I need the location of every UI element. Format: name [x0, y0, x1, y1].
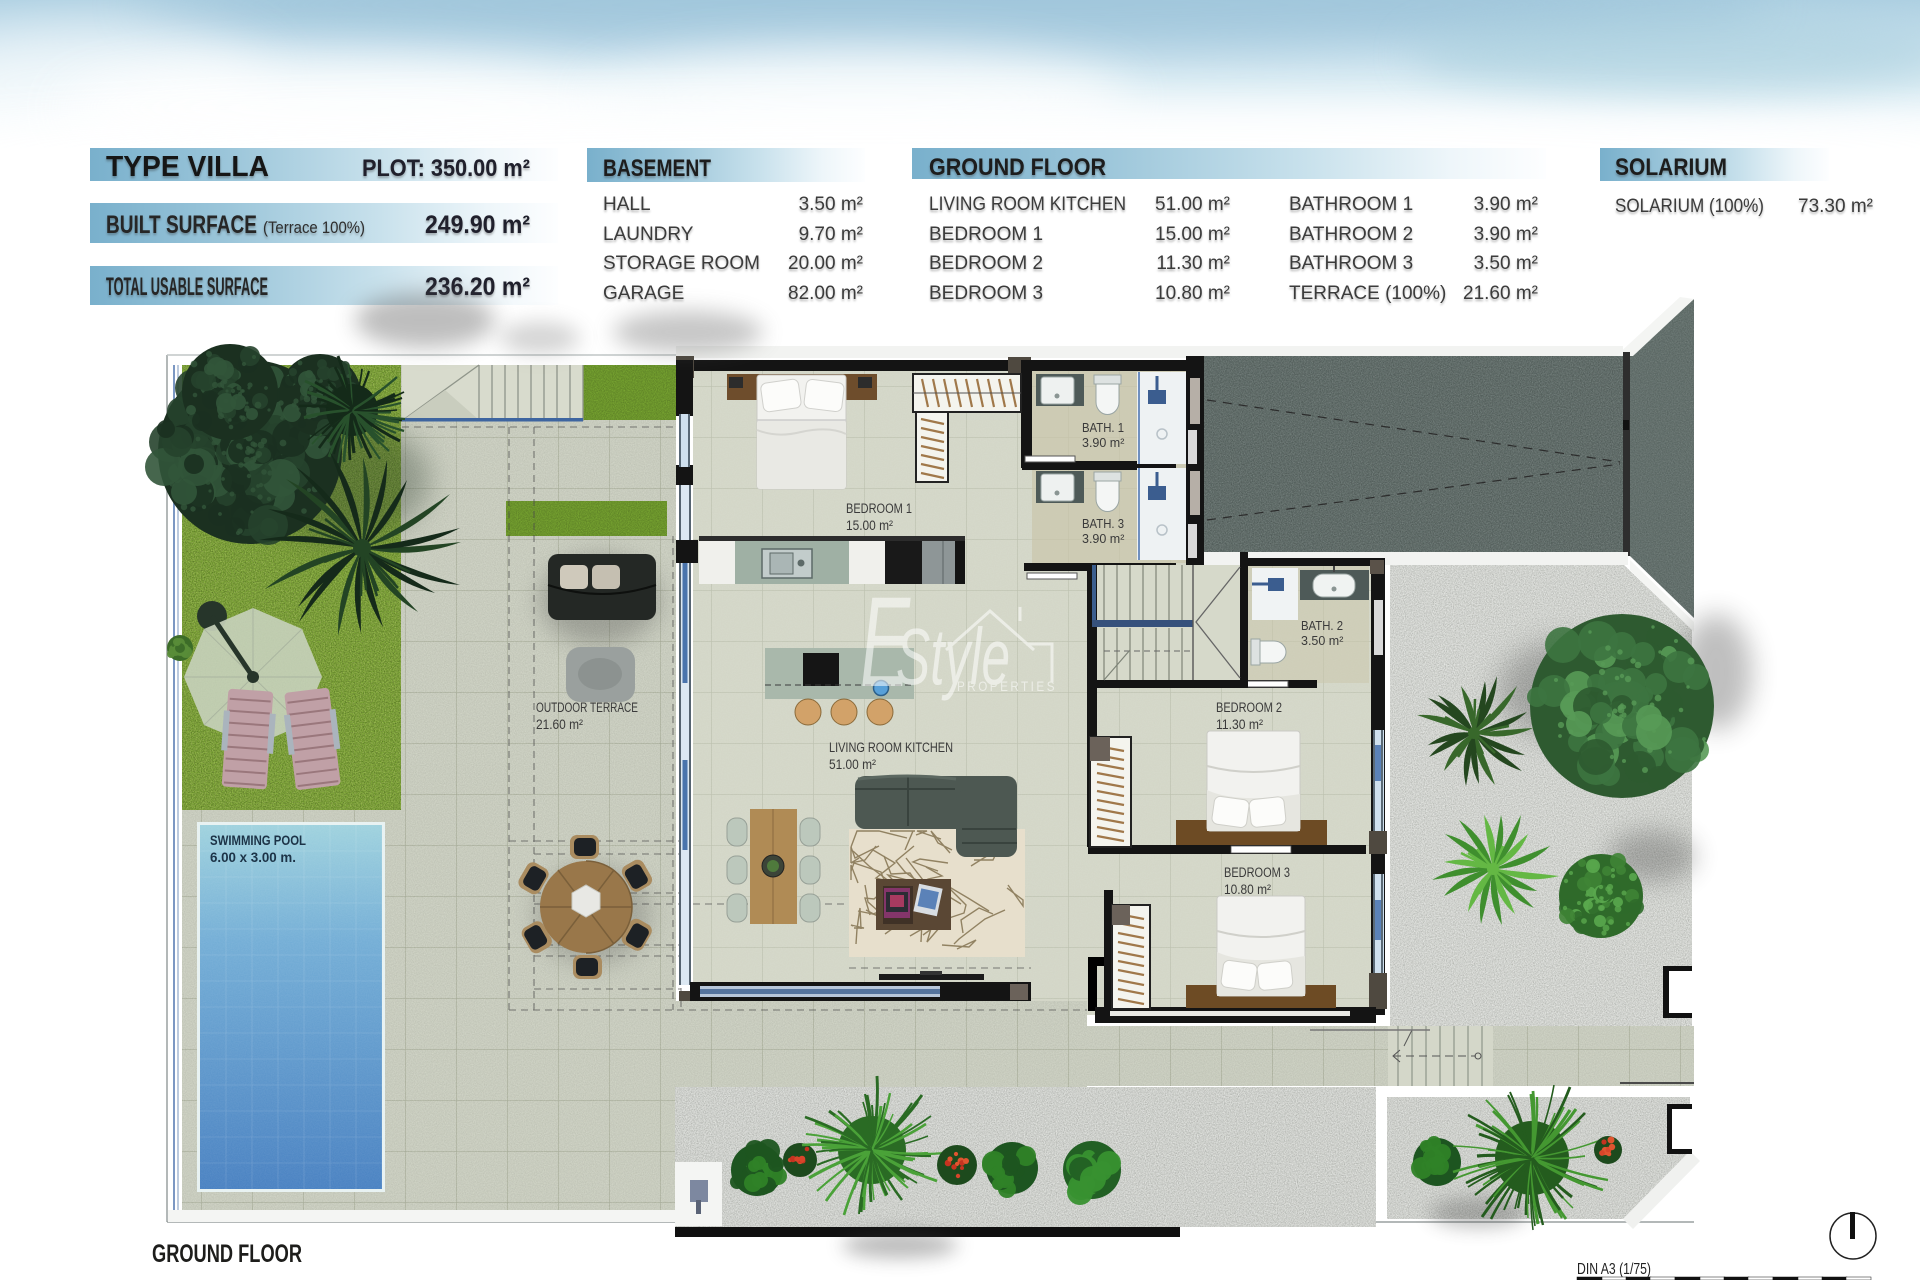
svg-text:51.00 m²: 51.00 m²: [1155, 194, 1230, 215]
svg-text:BEDROOM 3: BEDROOM 3: [1224, 865, 1290, 880]
svg-text:DIN A3 (1/75): DIN A3 (1/75): [1577, 1261, 1651, 1278]
svg-text:10.80 m²: 10.80 m²: [1224, 882, 1271, 897]
svg-text:STORAGE ROOM: STORAGE ROOM: [603, 253, 760, 274]
svg-text:SOLARIUM: SOLARIUM: [1615, 154, 1727, 181]
svg-text:BATH. 1: BATH. 1: [1082, 421, 1124, 435]
svg-text:9.70 m²: 9.70 m²: [799, 224, 863, 245]
svg-text:GROUND FLOOR: GROUND FLOOR: [152, 1240, 302, 1268]
svg-text:82.00 m²: 82.00 m²: [788, 283, 863, 304]
svg-text:GROUND FLOOR: GROUND FLOOR: [929, 154, 1106, 181]
svg-text:HALL: HALL: [603, 194, 651, 215]
svg-text:OUTDOOR TERRACE: OUTDOOR TERRACE: [536, 700, 638, 715]
svg-text:21.60 m²: 21.60 m²: [1463, 283, 1538, 304]
svg-text:BEDROOM 3: BEDROOM 3: [929, 283, 1043, 304]
svg-text:249.90 m²: 249.90 m²: [425, 211, 530, 239]
svg-text:BEDROOM 1: BEDROOM 1: [846, 501, 912, 516]
svg-text:LIVING ROOM KITCHEN: LIVING ROOM KITCHEN: [929, 194, 1126, 215]
svg-text:73.30 m²: 73.30 m²: [1798, 196, 1873, 217]
svg-text:BUILT SURFACE: BUILT SURFACE: [106, 211, 257, 239]
svg-text:SOLARIUM (100%): SOLARIUM (100%): [1615, 196, 1764, 217]
svg-text:TYPE VILLA: TYPE VILLA: [106, 151, 269, 183]
svg-text:BATHROOM 1: BATHROOM 1: [1289, 194, 1413, 215]
svg-text:15.00 m²: 15.00 m²: [1155, 224, 1230, 245]
svg-text:3.90 m²: 3.90 m²: [1082, 532, 1124, 546]
svg-text:TOTAL USABLE SURFACE: TOTAL USABLE SURFACE: [106, 273, 268, 301]
svg-text:3.50 m²: 3.50 m²: [1474, 253, 1538, 274]
svg-text:GARAGE: GARAGE: [603, 283, 684, 304]
svg-text:(Terrace 100%): (Terrace 100%): [263, 218, 365, 237]
svg-text:BEDROOM 2: BEDROOM 2: [929, 253, 1043, 274]
svg-text:LIVING ROOM KITCHEN: LIVING ROOM KITCHEN: [829, 740, 953, 755]
svg-text:3.90 m²: 3.90 m²: [1474, 194, 1538, 215]
svg-text:BASEMENT: BASEMENT: [603, 155, 711, 182]
svg-text:3.90 m²: 3.90 m²: [1474, 224, 1538, 245]
svg-text:PLOT: 350.00 m²: PLOT: 350.00 m²: [362, 155, 530, 182]
svg-text:21.60 m²: 21.60 m²: [536, 717, 583, 732]
svg-text:BATH. 2: BATH. 2: [1301, 619, 1343, 633]
svg-text:3.50 m²: 3.50 m²: [799, 194, 863, 215]
svg-text:20.00 m²: 20.00 m²: [788, 253, 863, 274]
svg-text:6.00 x 3.00 m.: 6.00 x 3.00 m.: [210, 849, 296, 865]
svg-text:BATH. 3: BATH. 3: [1082, 517, 1124, 531]
svg-text:BEDROOM 2: BEDROOM 2: [1216, 700, 1282, 715]
svg-text:BATHROOM 3: BATHROOM 3: [1289, 253, 1413, 274]
svg-text:TERRACE (100%): TERRACE (100%): [1289, 283, 1446, 304]
svg-text:PROPERTIES: PROPERTIES: [957, 678, 1057, 694]
svg-text:LAUNDRY: LAUNDRY: [603, 224, 694, 245]
svg-text:BEDROOM 1: BEDROOM 1: [929, 224, 1043, 245]
svg-text:3.90 m²: 3.90 m²: [1082, 436, 1124, 450]
svg-text:11.30 m²: 11.30 m²: [1216, 717, 1263, 732]
svg-text:BATHROOM 2: BATHROOM 2: [1289, 224, 1413, 245]
svg-text:15.00 m²: 15.00 m²: [846, 518, 893, 533]
svg-text:11.30 m²: 11.30 m²: [1156, 253, 1230, 274]
svg-text:3.50 m²: 3.50 m²: [1301, 634, 1343, 648]
svg-text:10.80 m²: 10.80 m²: [1155, 283, 1230, 304]
svg-text:51.00 m²: 51.00 m²: [829, 757, 876, 772]
svg-text:SWIMMING POOL: SWIMMING POOL: [210, 832, 306, 848]
